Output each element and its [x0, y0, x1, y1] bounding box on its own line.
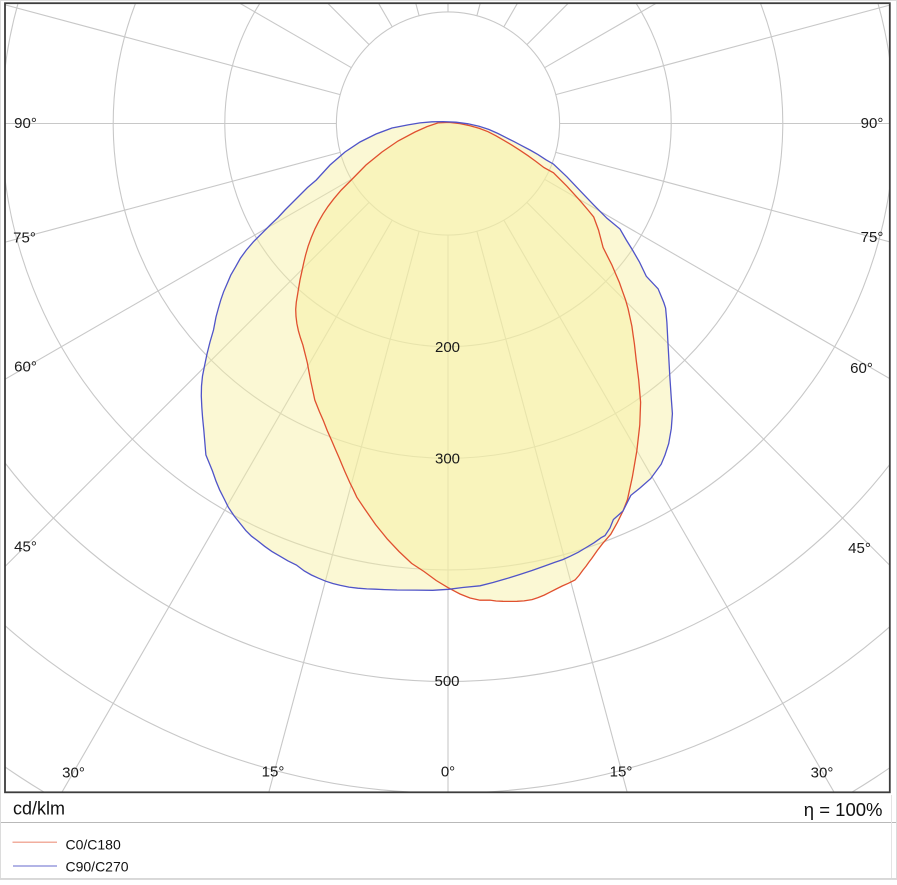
svg-text:45°: 45° — [848, 540, 871, 557]
svg-text:30°: 30° — [62, 765, 85, 782]
svg-text:75°: 75° — [861, 229, 884, 246]
svg-text:C90/C270: C90/C270 — [66, 858, 129, 874]
svg-text:30°: 30° — [811, 765, 834, 782]
svg-text:cd/klm: cd/klm — [13, 799, 65, 819]
svg-text:η = 100%: η = 100% — [804, 799, 883, 820]
svg-text:75°: 75° — [13, 230, 36, 247]
svg-text:60°: 60° — [850, 360, 873, 377]
svg-text:300: 300 — [435, 451, 460, 468]
svg-text:0°: 0° — [441, 764, 455, 781]
svg-text:200: 200 — [435, 339, 460, 356]
svg-text:90°: 90° — [14, 115, 37, 132]
svg-text:500: 500 — [434, 673, 459, 690]
svg-text:C0/C180: C0/C180 — [66, 837, 121, 853]
svg-text:60°: 60° — [14, 359, 37, 376]
svg-text:45°: 45° — [14, 539, 37, 556]
svg-text:15°: 15° — [610, 764, 633, 781]
svg-text:90°: 90° — [861, 115, 884, 132]
svg-text:15°: 15° — [262, 764, 285, 781]
